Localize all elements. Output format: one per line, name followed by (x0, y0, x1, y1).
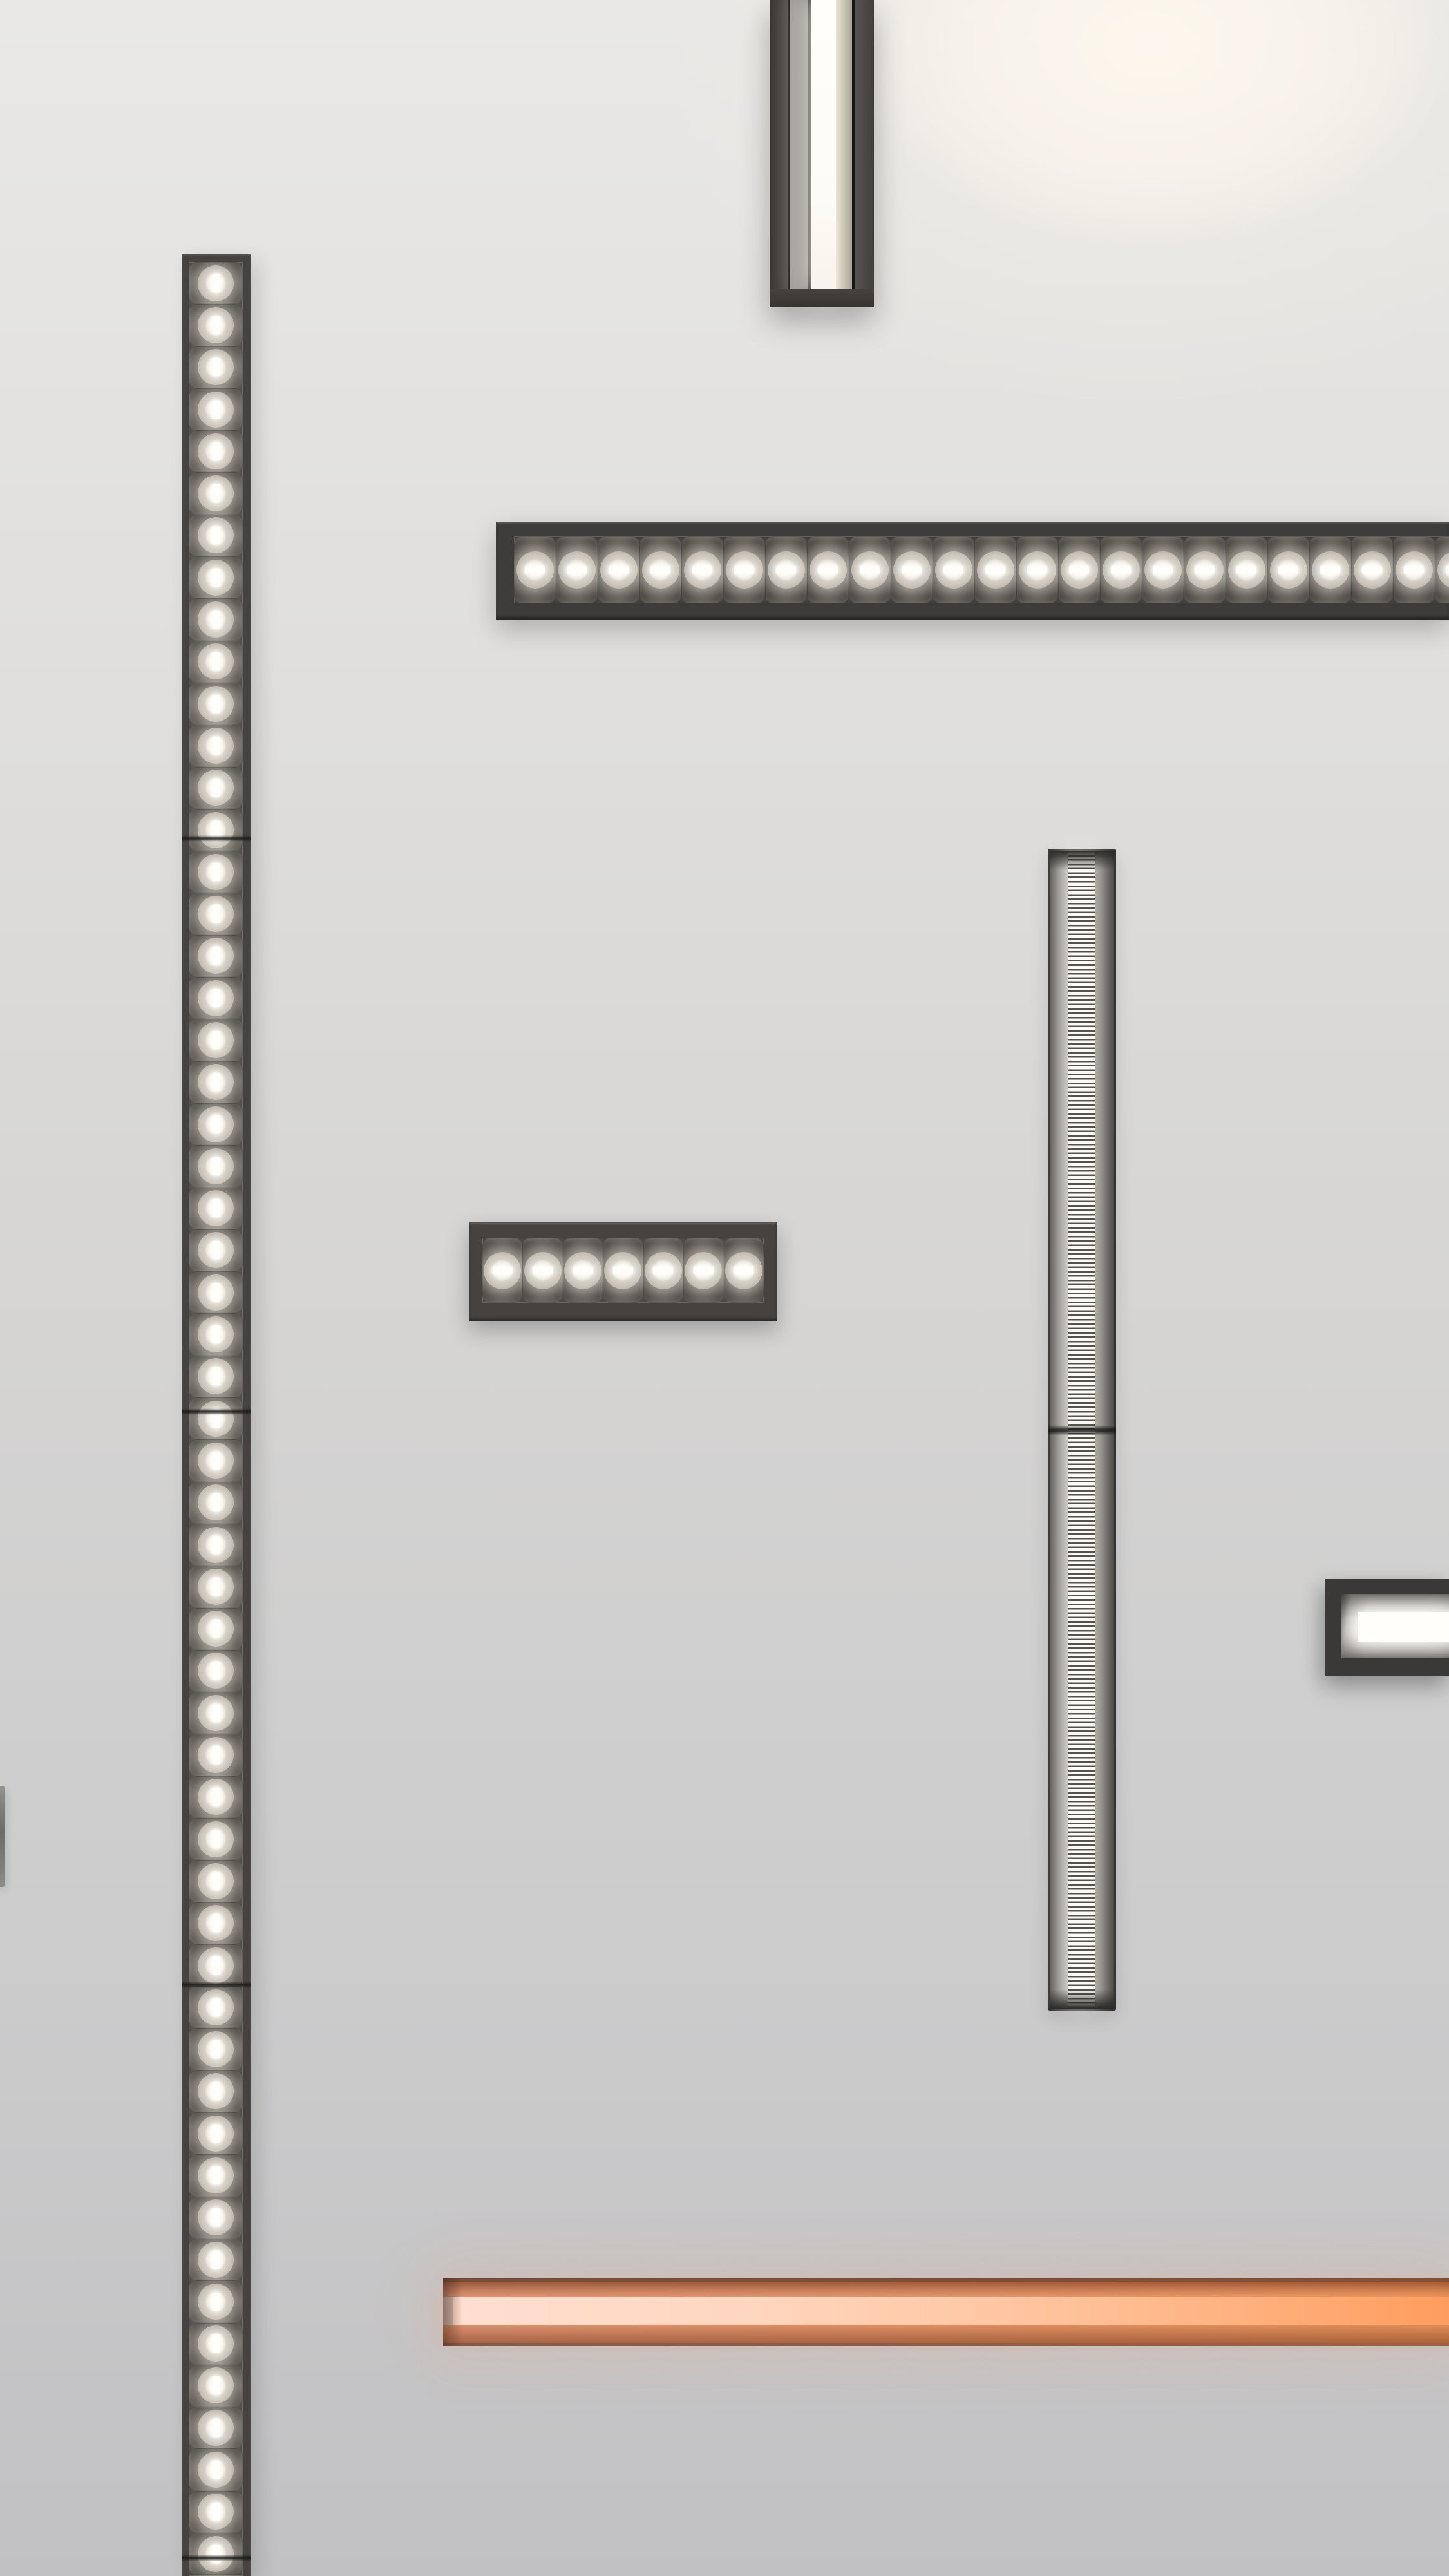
led-chip (734, 1267, 742, 1274)
led-cell (189, 1860, 243, 1902)
led-lens (198, 2410, 234, 2446)
led-chip (212, 915, 220, 923)
led-cell (189, 1439, 243, 1481)
led-chip-pair (205, 315, 226, 336)
channel-diffuser (811, 0, 836, 289)
led-cell (1267, 536, 1309, 603)
led-chip (650, 566, 659, 574)
led-cell (681, 536, 723, 603)
led-cell (189, 1145, 243, 1187)
led-lens (198, 2494, 234, 2530)
led-chip (212, 2503, 220, 2510)
led-chip-pair (205, 693, 226, 714)
led-cell (189, 977, 243, 1019)
led-chip (212, 442, 220, 450)
led-cell (1435, 536, 1449, 603)
led-cell (189, 1482, 243, 1524)
led-chip (212, 1325, 220, 1333)
slot-bottom-edge (443, 2343, 1449, 2346)
led-lens (1270, 551, 1307, 589)
led-cell (482, 1238, 522, 1303)
led-chip-pair (205, 1324, 226, 1345)
led-chip-pair (205, 1660, 226, 1681)
fixture-dot-strip-top-horizontal (496, 522, 1449, 620)
led-chip (212, 2345, 220, 2353)
led-chip-pair (205, 1492, 226, 1513)
led-chip (1122, 566, 1131, 574)
led-lens (198, 896, 234, 932)
led-chip-pair (205, 945, 226, 966)
led-chip (1362, 566, 1370, 574)
led-chip-pair (205, 525, 226, 545)
led-chip (913, 566, 922, 574)
led-chip (212, 779, 220, 786)
led-lens (198, 2031, 234, 2067)
led-chip (212, 1420, 220, 1428)
led-lens (1103, 551, 1140, 589)
led-chip (1332, 566, 1340, 574)
led-chip-pair (734, 559, 755, 581)
led-chip (212, 1841, 220, 1848)
led-lens (198, 2073, 234, 2109)
led-chip-pair (566, 559, 588, 581)
led-chip (212, 1620, 220, 1627)
led-lens (1228, 551, 1265, 589)
module-seam (182, 2555, 251, 2561)
led-chip (776, 566, 784, 574)
gallery-wall (0, 0, 1449, 2576)
led-chip-pair (859, 559, 881, 581)
led-chip (662, 566, 670, 574)
led-cell-row (514, 536, 1449, 603)
led-cell (189, 556, 243, 598)
led-cell (189, 1692, 243, 1734)
led-lens (198, 1527, 234, 1563)
led-chip-pair (775, 559, 797, 581)
led-chip-pair (205, 567, 226, 587)
led-chip-pair (1403, 559, 1425, 581)
led-cell (189, 2197, 243, 2239)
led-chip-pair (1320, 559, 1341, 581)
led-chip (493, 1267, 501, 1274)
led-chip-pair (733, 1260, 755, 1282)
led-chip-pair (205, 2501, 226, 2522)
led-chip-pair (1361, 559, 1383, 581)
slot-left-shade (443, 2278, 462, 2346)
led-chip (212, 989, 220, 997)
led-lens (198, 1401, 234, 1437)
led-chip-pair (205, 1618, 226, 1639)
led-lens (198, 1947, 234, 1984)
led-chip (212, 453, 220, 460)
led-cell (1184, 536, 1226, 603)
led-cell (189, 304, 243, 346)
led-lens (198, 1989, 234, 2025)
led-chip (212, 1073, 220, 1081)
led-chip-pair (491, 1260, 513, 1282)
led-chip-pair (205, 2123, 226, 2143)
led-chip (212, 1714, 220, 1722)
led-chip (1153, 566, 1161, 574)
led-lens (198, 1653, 234, 1689)
led-chip (504, 1267, 513, 1274)
led-chip-pair (205, 735, 226, 756)
led-chip (578, 566, 587, 574)
led-cell (1100, 536, 1142, 603)
led-chip (212, 695, 220, 703)
channel-frame-left (770, 0, 788, 289)
led-chip (212, 1998, 220, 2006)
led-chip-pair (693, 1260, 715, 1282)
led-cell (189, 1818, 243, 1860)
channel-fade (836, 0, 852, 289)
fixture-dot-strip-left-vertical (182, 254, 251, 2576)
led-chip (573, 1267, 582, 1274)
led-chip (212, 484, 220, 492)
led-chip (212, 1283, 220, 1291)
led-lens (198, 1611, 234, 1647)
led-cell (1351, 536, 1393, 603)
led-chip (212, 2009, 220, 2016)
led-chip (212, 873, 220, 881)
led-chip (536, 566, 545, 574)
led-chip (1236, 566, 1245, 574)
led-lens (198, 1064, 234, 1100)
led-chip-pair (205, 1534, 226, 1555)
led-cell (189, 388, 243, 430)
led-chip (212, 821, 220, 829)
led-chip (985, 566, 994, 574)
led-chip (1111, 566, 1119, 574)
led-chip (704, 566, 712, 574)
led-chip (620, 566, 629, 574)
led-cell (189, 1397, 243, 1439)
led-cell (189, 724, 243, 766)
led-chip-pair (205, 2081, 226, 2101)
led-cell (1226, 536, 1267, 603)
led-lens (198, 1358, 234, 1394)
led-chip-pair (1152, 559, 1174, 581)
led-chip-pair (1110, 559, 1132, 581)
led-chip (212, 1924, 220, 1932)
channel-side-panel (790, 0, 808, 289)
led-lens (198, 938, 234, 974)
led-chip-pair (205, 987, 226, 1008)
led-chip (212, 905, 220, 913)
led-cell (643, 1238, 683, 1303)
led-chip (1027, 566, 1036, 574)
led-cell (189, 1313, 243, 1355)
led-lens (851, 551, 889, 589)
led-chip-pair (205, 609, 226, 630)
led-chip (567, 566, 575, 574)
led-cell (189, 2154, 243, 2196)
led-chip (1206, 566, 1215, 574)
led-chip-pair (205, 399, 226, 419)
led-chip (212, 358, 220, 366)
led-chip-pair (205, 1072, 226, 1092)
module-seam (182, 1408, 251, 1415)
led-chip (212, 327, 220, 334)
led-lens (810, 551, 847, 589)
slot-top-shade (443, 2282, 1449, 2297)
led-lens (198, 1232, 234, 1268)
led-lens (198, 1484, 234, 1520)
led-cell (189, 683, 243, 724)
led-chip (212, 863, 220, 871)
led-chip-pair (532, 1260, 554, 1282)
led-lens (198, 1148, 234, 1184)
led-chip (212, 789, 220, 797)
led-chip-pair (205, 1828, 226, 1849)
led-chip (533, 1267, 541, 1274)
led-lens (600, 551, 638, 589)
led-cell (189, 2028, 243, 2070)
led-lens (726, 551, 763, 589)
led-lens (198, 1863, 234, 1899)
led-lens (198, 1695, 234, 1731)
led-chip (525, 566, 533, 574)
led-lens (198, 560, 234, 596)
led-chip-pair (205, 441, 226, 462)
led-chip (212, 1115, 220, 1123)
led-lens (198, 392, 234, 428)
led-chip (212, 1462, 220, 1470)
led-cell (598, 536, 639, 603)
led-cell (189, 515, 243, 556)
led-chip-pair (205, 272, 226, 293)
led-lens (524, 1252, 562, 1289)
led-cell (974, 536, 1016, 603)
led-cell (189, 851, 243, 893)
led-lens (684, 551, 721, 589)
led-chip (212, 2303, 220, 2311)
led-cell (189, 1776, 243, 1818)
fixture-orange-slot (443, 2278, 1449, 2346)
led-lens (198, 2157, 234, 2193)
led-lens (768, 551, 805, 589)
led-lens (558, 551, 596, 589)
led-chip (212, 1336, 220, 1343)
led-cell (807, 536, 849, 603)
led-chip (212, 2082, 220, 2090)
led-chip (212, 1788, 220, 1795)
led-chip-pair (1278, 559, 1300, 581)
led-chip (212, 526, 220, 534)
led-chip (609, 566, 617, 574)
baffle-shade-bottom (1050, 1989, 1114, 2009)
led-chip (212, 2092, 220, 2100)
led-chip-pair (205, 777, 226, 798)
led-chip (212, 621, 220, 629)
led-cell (189, 2112, 243, 2154)
led-lens (198, 1569, 234, 1605)
fixture-edge-sliver-left (0, 1786, 5, 1887)
led-chip (212, 1662, 220, 1669)
led-chip-pair (205, 1871, 226, 1891)
led-lens (645, 1252, 682, 1289)
led-cell (189, 1061, 243, 1103)
led-chip (212, 1546, 220, 1554)
led-cell (765, 536, 807, 603)
led-lens (198, 1022, 234, 1058)
led-chip-pair (205, 1703, 226, 1723)
led-cell (189, 1944, 243, 1986)
led-chip-pair (1068, 559, 1090, 581)
led-chip-pair (943, 559, 965, 581)
led-cell (724, 1238, 764, 1303)
led-chip (1278, 566, 1287, 574)
led-chip (212, 1157, 220, 1165)
led-cell (1393, 536, 1435, 603)
led-chip (1248, 566, 1256, 574)
led-lens (198, 307, 234, 343)
led-lens (642, 551, 679, 589)
led-chip (212, 1241, 220, 1249)
led-cell (189, 2448, 243, 2490)
led-cell (933, 536, 974, 603)
led-cell (189, 1103, 243, 1145)
led-chip (212, 1578, 220, 1586)
led-chip (212, 2135, 220, 2143)
led-chip (212, 2376, 220, 2384)
led-chip (212, 2293, 220, 2300)
led-chip (653, 1267, 661, 1274)
led-lens (198, 2536, 234, 2572)
led-chip (788, 566, 796, 574)
led-chip (212, 957, 220, 965)
led-lens (198, 980, 234, 1016)
led-chip-pair (205, 2207, 226, 2228)
led-cell (189, 1650, 243, 1692)
led-chip-pair (205, 1156, 226, 1177)
led-chip (1416, 566, 1424, 574)
led-chip (955, 566, 963, 574)
led-chip-pair (1445, 559, 1449, 581)
led-chip-pair (205, 1198, 226, 1218)
led-chip (212, 2419, 220, 2427)
led-lens (198, 812, 234, 848)
led-chip-pair (205, 1997, 226, 2018)
led-chip (212, 947, 220, 954)
led-lens (198, 349, 234, 385)
led-chip (212, 1041, 220, 1049)
led-chip-pair (205, 1113, 226, 1134)
led-lens (685, 1252, 722, 1289)
led-chip (212, 663, 220, 670)
led-cell (189, 1734, 243, 1776)
led-cell (849, 536, 891, 603)
led-cell (189, 1986, 243, 2028)
led-chip (1069, 566, 1077, 574)
led-cell (189, 1271, 243, 1313)
led-cell (189, 262, 243, 304)
led-lens (893, 551, 931, 589)
led-lens (198, 2199, 234, 2235)
led-chip (212, 999, 220, 1007)
led-lens (198, 2116, 234, 2152)
led-chip (212, 1704, 220, 1712)
led-chip (1320, 566, 1329, 574)
led-cell (189, 1902, 243, 1944)
led-chip-pair (205, 1745, 226, 1765)
led-chip (694, 1267, 702, 1274)
led-cell (189, 809, 243, 851)
led-chip (212, 285, 220, 292)
led-cell (189, 641, 243, 683)
led-cell (189, 2070, 243, 2112)
led-lens (198, 2452, 234, 2488)
led-chip (212, 1746, 220, 1754)
led-cell (522, 1238, 562, 1303)
led-chip (212, 1967, 220, 1975)
led-cell (723, 536, 765, 603)
led-chip (212, 2461, 220, 2468)
led-lens (198, 1779, 234, 1815)
led-chip (212, 2513, 220, 2521)
led-chip (212, 1378, 220, 1385)
led-chip (212, 1536, 220, 1544)
led-lens (1312, 551, 1349, 589)
led-chip-pair (572, 1260, 594, 1282)
led-chip-pair (612, 1260, 634, 1282)
led-chip-pair (205, 2375, 226, 2396)
led-lens (198, 1737, 234, 1773)
led-chip (1290, 566, 1298, 574)
led-lens (198, 1274, 234, 1311)
led-chip (212, 1251, 220, 1259)
led-cell-row (482, 1238, 764, 1303)
window-diffuser (1358, 1612, 1449, 1642)
led-cell (189, 1188, 243, 1229)
led-lens (1144, 551, 1182, 589)
fixture-baffle-channel-vertical (1048, 849, 1116, 2011)
led-chip (829, 566, 838, 574)
led-chip-pair (608, 559, 630, 581)
led-chip (902, 566, 910, 574)
led-chip-pair (205, 904, 226, 924)
led-chip (943, 566, 952, 574)
led-cell (189, 430, 243, 472)
led-chip-pair (817, 559, 839, 581)
led-chip (212, 579, 220, 587)
led-chip-pair (205, 862, 226, 882)
led-lens (198, 1316, 234, 1352)
led-chip (212, 1588, 220, 1596)
led-lens (198, 475, 234, 511)
led-chip-pair (205, 2291, 226, 2312)
led-chip-pair (205, 651, 226, 672)
led-chip (997, 566, 1005, 574)
led-chip (1081, 566, 1089, 574)
led-chip (212, 1199, 220, 1207)
led-cell (1142, 536, 1184, 603)
led-chip (212, 2166, 220, 2174)
led-cell (189, 2280, 243, 2322)
led-lens (516, 551, 554, 589)
led-cell (683, 1238, 723, 1303)
led-cell (189, 2365, 243, 2407)
led-lens (198, 1443, 234, 1479)
led-lens (198, 728, 234, 764)
led-chip-pair (205, 2543, 226, 2564)
led-chip (212, 411, 220, 419)
led-chip (212, 495, 220, 502)
led-cell (891, 536, 933, 603)
led-chip (212, 368, 220, 376)
led-chip-pair (205, 1282, 226, 1303)
led-chip-pair (692, 559, 714, 581)
